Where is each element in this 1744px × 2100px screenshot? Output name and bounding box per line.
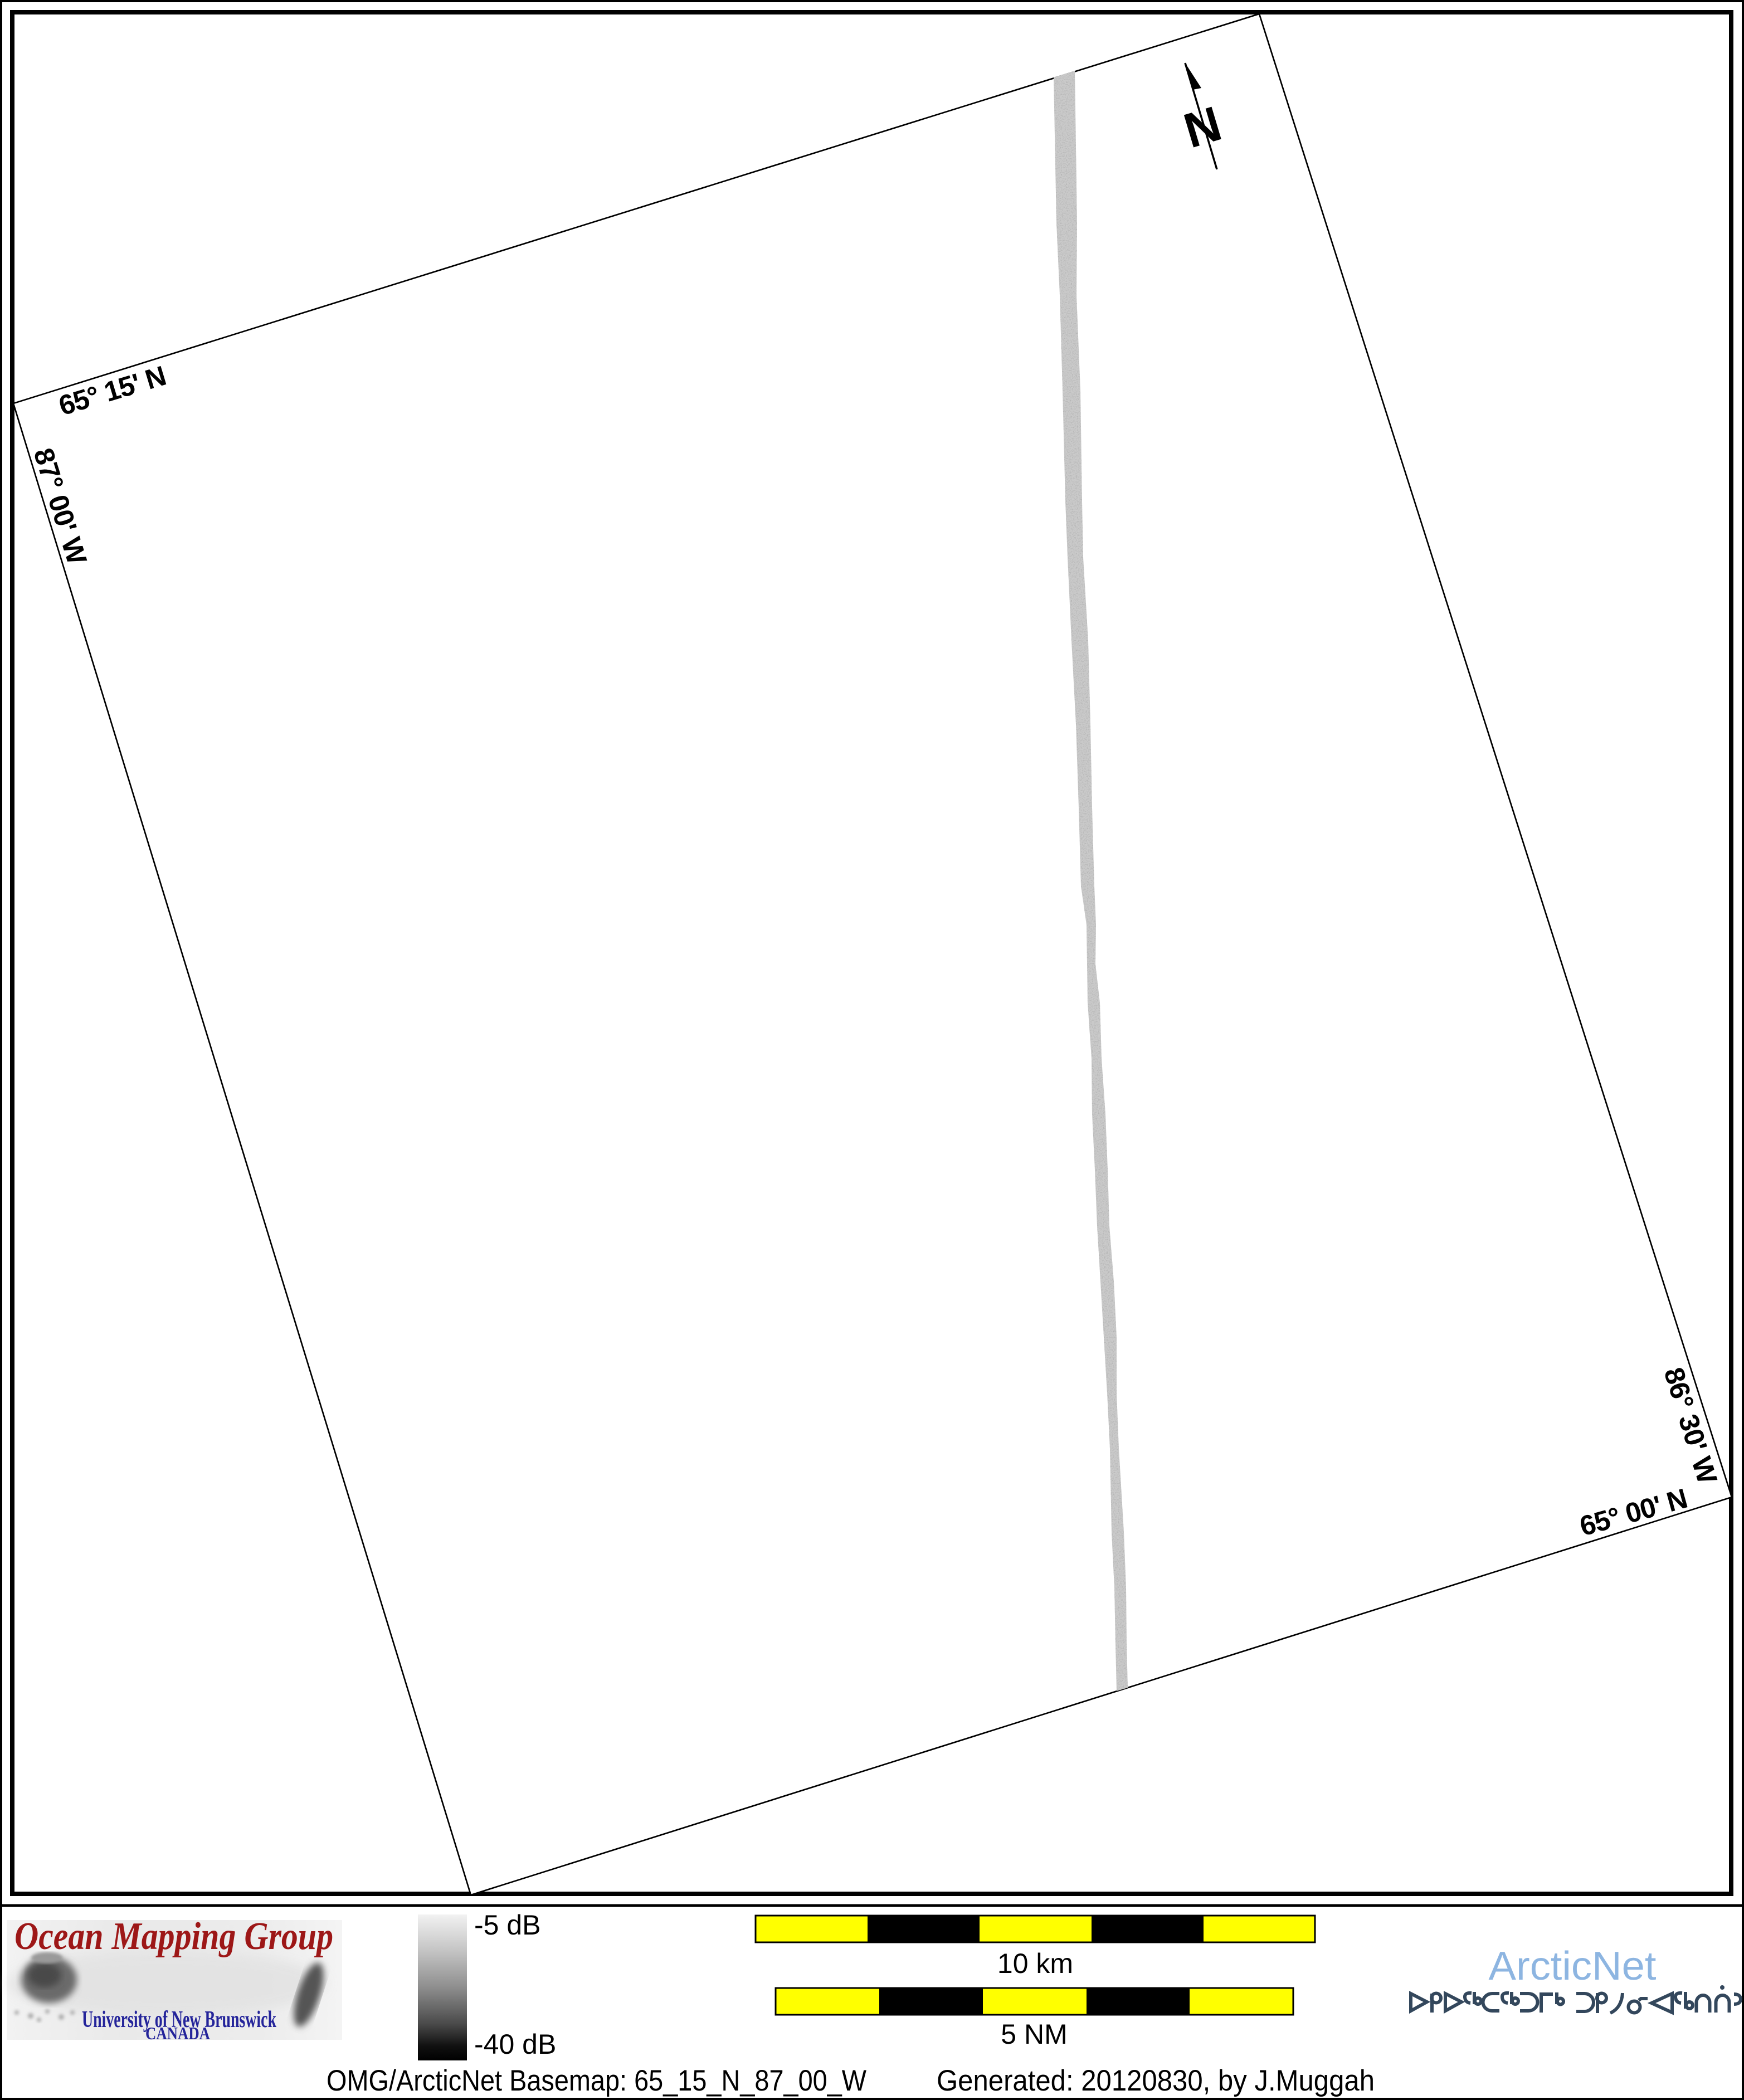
svg-text:10 km: 10 km xyxy=(997,1948,1073,1979)
svg-text:-40 dB: -40 dB xyxy=(474,2029,556,2060)
svg-text:Generated: 20120830, by J.Mugg: Generated: 20120830, by J.Muggah xyxy=(937,2064,1375,2097)
svg-text:-5 dB: -5 dB xyxy=(474,1909,541,1941)
svg-text:CANADA: CANADA xyxy=(145,2023,210,2043)
svg-text:5 NM: 5 NM xyxy=(1001,2019,1067,2050)
svg-text:OMG/ArcticNet Basemap: 65_15_N: OMG/ArcticNet Basemap: 65_15_N_87_00_W xyxy=(327,2064,866,2097)
svg-text:Ocean Mapping Group: Ocean Mapping Group xyxy=(14,1915,333,1958)
svg-text:ArcticNet: ArcticNet xyxy=(1489,1944,1657,1989)
